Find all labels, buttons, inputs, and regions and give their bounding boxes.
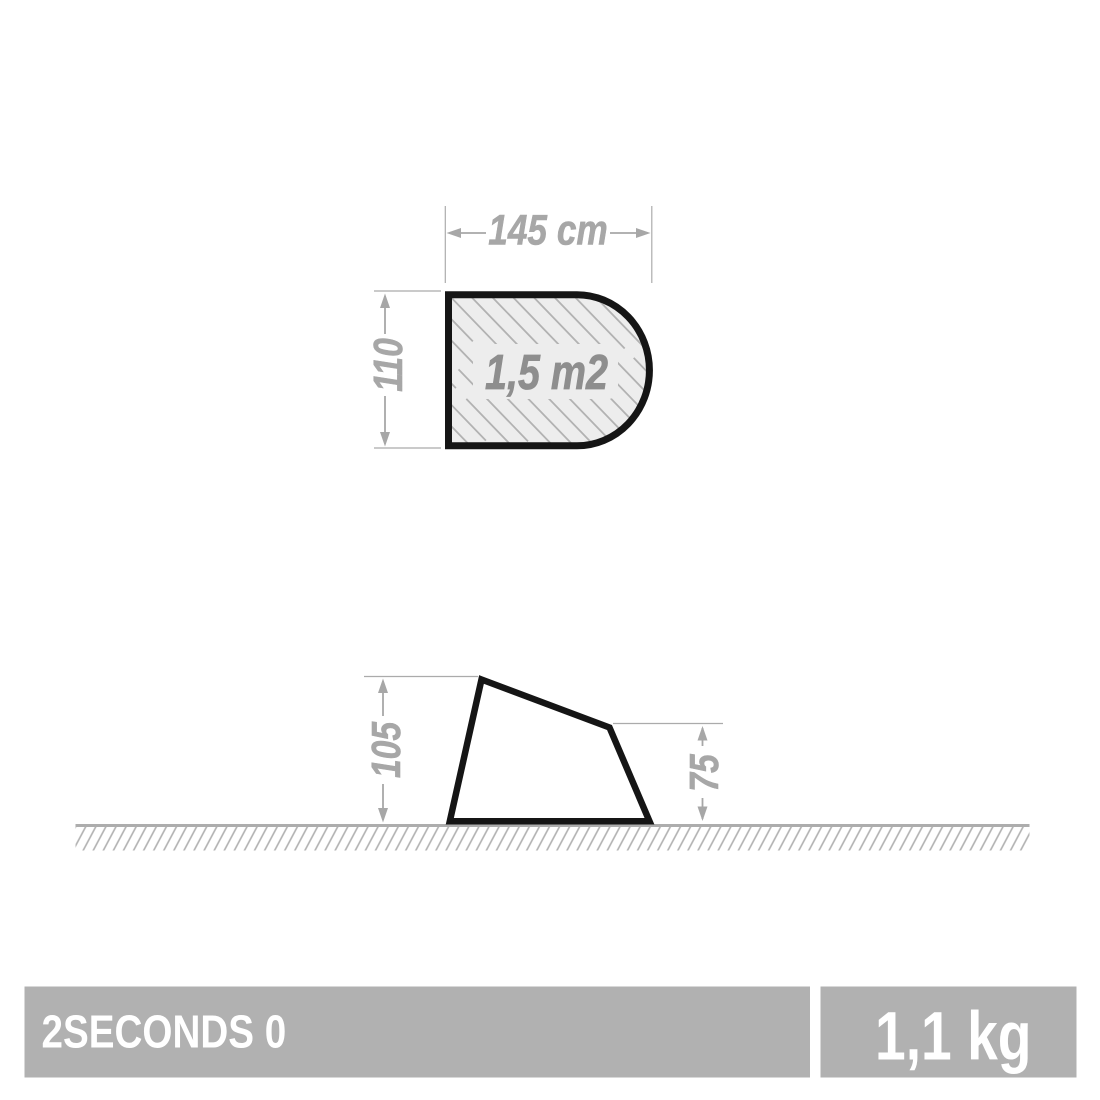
svg-text:145 cm: 145 cm [488,206,608,254]
svg-text:110: 110 [365,338,411,392]
svg-text:1,1 kg: 1,1 kg [875,998,1031,1075]
svg-text:75: 75 [681,753,727,791]
svg-text:105: 105 [363,721,409,778]
svg-text:2SECONDS 0: 2SECONDS 0 [42,1006,287,1057]
svg-text:1,5 m2: 1,5 m2 [485,346,608,400]
